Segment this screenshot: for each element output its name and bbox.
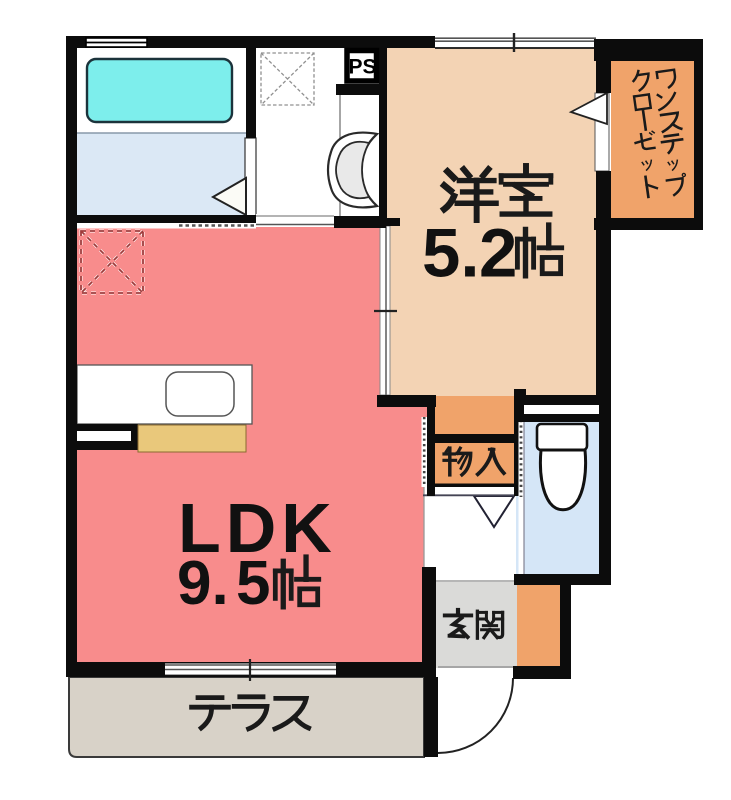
svg-text:5: 5 xyxy=(236,549,270,618)
svg-text:2: 2 xyxy=(479,215,517,292)
svg-text:5.: 5. xyxy=(422,215,480,292)
svg-text:9.: 9. xyxy=(177,549,229,618)
svg-text:PS: PS xyxy=(348,56,376,79)
